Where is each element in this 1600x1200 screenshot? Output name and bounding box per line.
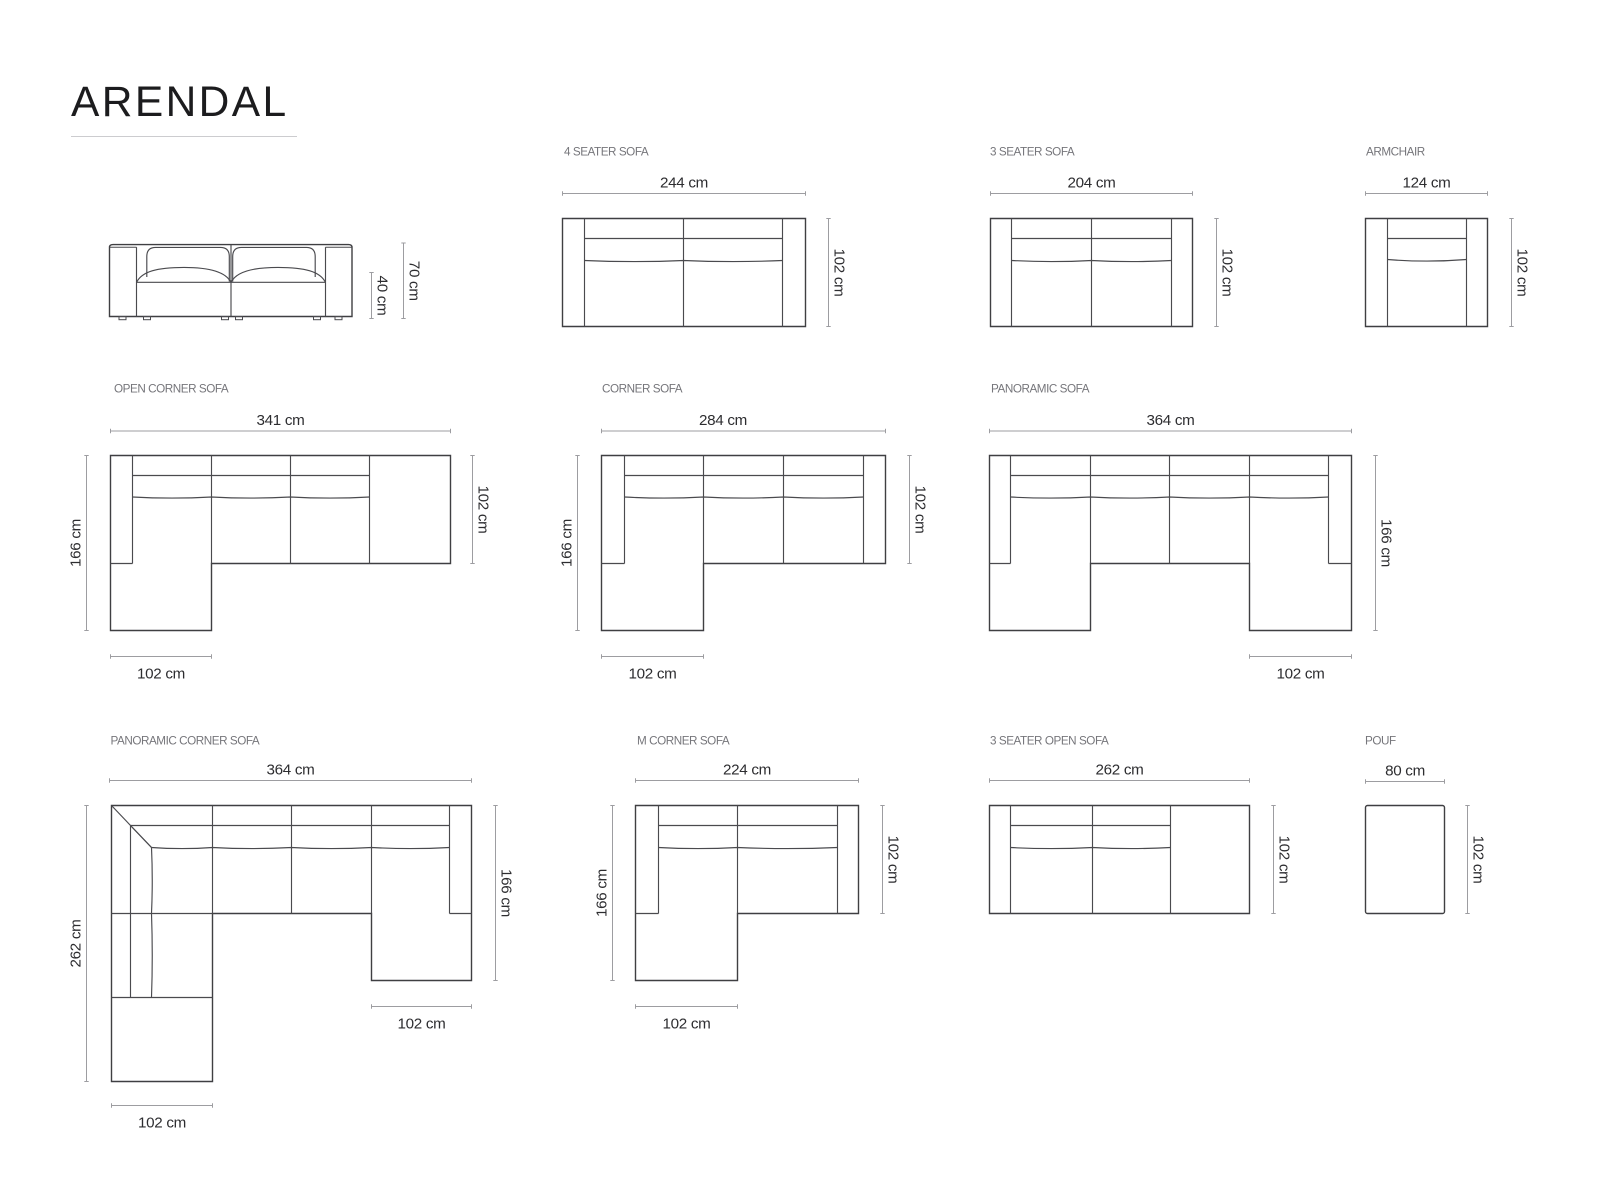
svg-text:166 cm: 166 cm (559, 519, 576, 567)
svg-text:POUF: POUF (1365, 735, 1396, 748)
svg-text:102 cm: 102 cm (1276, 666, 1324, 683)
svg-text:M CORNER SOFA: M CORNER SOFA (637, 735, 730, 748)
svg-text:102 cm: 102 cm (830, 248, 847, 296)
svg-text:244 cm: 244 cm (660, 175, 708, 192)
svg-text:OPEN CORNER SOFA: OPEN CORNER SOFA (114, 383, 229, 396)
svg-text:CORNER SOFA: CORNER SOFA (602, 383, 683, 396)
svg-text:262 cm: 262 cm (1095, 762, 1143, 779)
svg-text:364 cm: 364 cm (1146, 412, 1194, 429)
svg-text:102 cm: 102 cm (474, 485, 491, 533)
svg-text:70 cm: 70 cm (405, 261, 422, 301)
svg-text:102 cm: 102 cm (662, 1016, 710, 1033)
svg-text:364 cm: 364 cm (266, 762, 314, 779)
svg-text:124 cm: 124 cm (1402, 175, 1450, 192)
svg-text:102 cm: 102 cm (1275, 835, 1292, 883)
svg-text:224 cm: 224 cm (723, 762, 771, 779)
svg-text:102 cm: 102 cm (138, 1115, 186, 1132)
svg-text:341 cm: 341 cm (256, 412, 304, 429)
svg-text:3 SEATER OPEN SOFA: 3 SEATER OPEN SOFA (990, 735, 1109, 748)
svg-text:4 SEATER SOFA: 4 SEATER SOFA (564, 146, 649, 159)
svg-text:102 cm: 102 cm (1469, 835, 1486, 883)
svg-text:PANORAMIC CORNER SOFA: PANORAMIC CORNER SOFA (111, 735, 260, 748)
svg-text:166 cm: 166 cm (1377, 519, 1394, 567)
svg-text:40 cm: 40 cm (373, 276, 390, 316)
svg-text:102 cm: 102 cm (1218, 248, 1235, 296)
svg-text:102 cm: 102 cm (137, 666, 185, 683)
svg-text:204 cm: 204 cm (1067, 175, 1115, 192)
svg-text:102 cm: 102 cm (1513, 248, 1530, 296)
svg-text:102 cm: 102 cm (397, 1016, 445, 1033)
svg-text:3 SEATER SOFA: 3 SEATER SOFA (990, 146, 1075, 159)
svg-text:102 cm: 102 cm (628, 666, 676, 683)
svg-text:166 cm: 166 cm (497, 869, 514, 917)
svg-text:166 cm: 166 cm (68, 519, 85, 567)
svg-text:80 cm: 80 cm (1385, 763, 1425, 780)
svg-text:ARMCHAIR: ARMCHAIR (1366, 146, 1425, 159)
svg-text:PANORAMIC SOFA: PANORAMIC SOFA (991, 383, 1090, 396)
svg-text:284 cm: 284 cm (699, 412, 747, 429)
svg-text:262 cm: 262 cm (68, 919, 85, 967)
svg-text:ARENDAL: ARENDAL (71, 79, 289, 126)
svg-text:102 cm: 102 cm (884, 835, 901, 883)
svg-text:102 cm: 102 cm (911, 485, 928, 533)
svg-text:166 cm: 166 cm (594, 869, 611, 917)
